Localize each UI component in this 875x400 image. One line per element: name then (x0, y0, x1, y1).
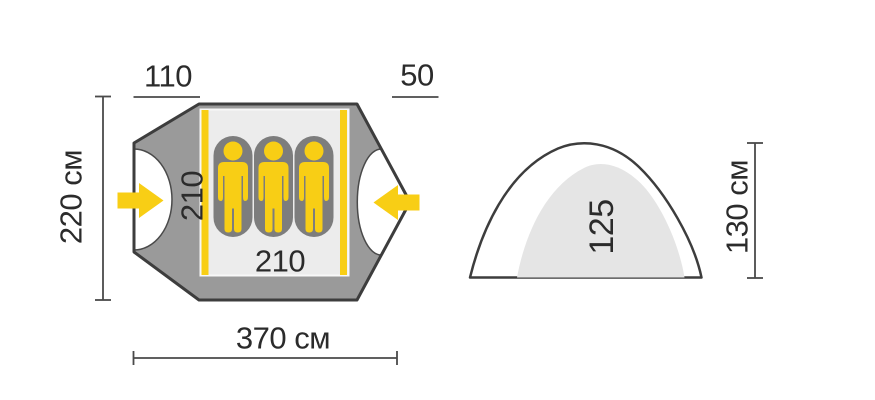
label-outer-width: 220 см (56, 150, 87, 244)
tent-dimensions-diagram: 110 50 220 см 210 210 370 см 125 130 см (0, 0, 875, 400)
person-icon (254, 136, 293, 237)
sleeping-spots (214, 136, 334, 237)
dim-line-220 (95, 97, 111, 301)
person-icon (214, 136, 253, 237)
label-left-vestibule-depth: 110 (144, 61, 192, 92)
pole-stripe-right (340, 110, 347, 275)
label-total-length: 370 см (236, 323, 330, 354)
label-inner-width: 210 (177, 171, 208, 221)
label-inner-length: 210 (255, 246, 305, 277)
person-icon (295, 136, 334, 237)
label-right-vestibule-depth: 50 (400, 60, 433, 91)
label-outer-height: 130 см (722, 160, 753, 254)
label-inner-height: 125 (585, 199, 619, 254)
